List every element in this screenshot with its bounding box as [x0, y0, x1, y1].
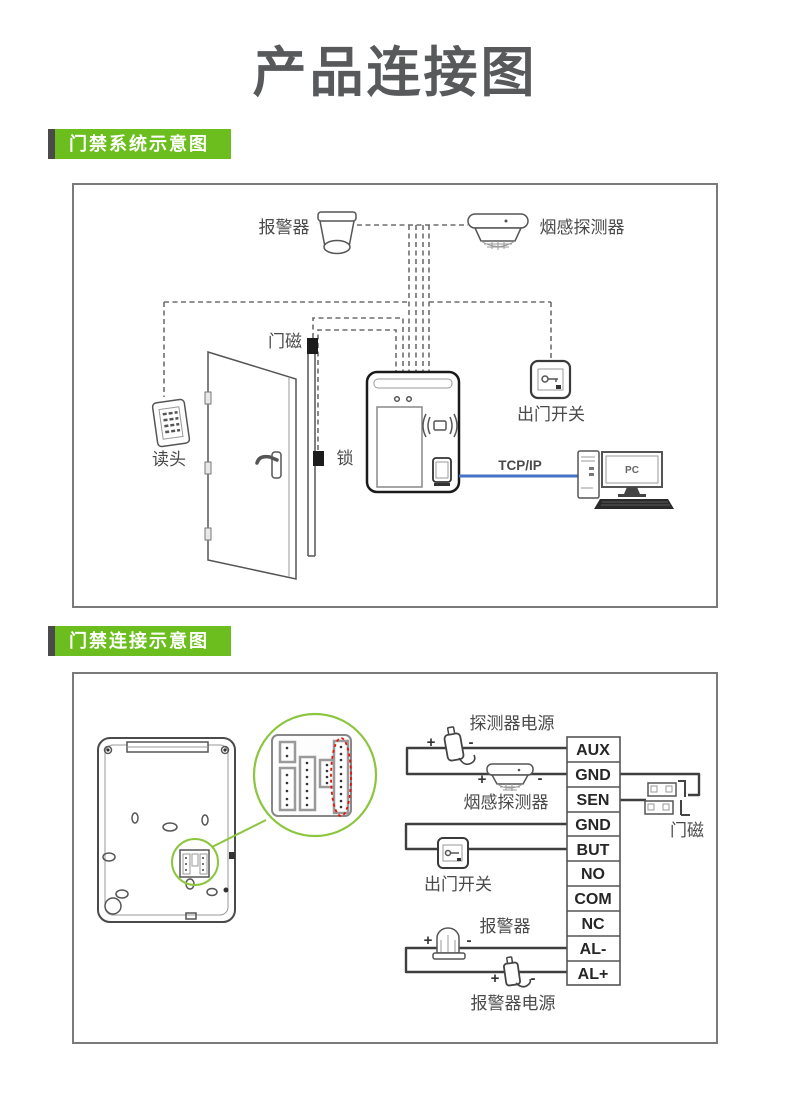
pc-label: PC: [625, 465, 639, 476]
exit-switch-icon: [438, 838, 468, 868]
minus-sign: -: [469, 734, 474, 751]
page-title: 产品连接图: [0, 28, 790, 107]
section-header-system: 门禁系统示意图: [48, 129, 231, 159]
card-reader-icon: [152, 399, 190, 447]
access-terminal-icon: [367, 372, 459, 492]
terminal-gnd2: GND: [575, 817, 611, 834]
section-header-wiring: 门禁连接示意图: [48, 626, 231, 656]
minus-sign: -: [531, 970, 536, 987]
section-label: 门禁系统示意图: [55, 129, 231, 159]
smoke-label: 烟感探测器: [464, 793, 549, 812]
minus-sign: -: [467, 932, 472, 949]
door-magnet-label: 门磁: [670, 821, 704, 840]
tcpip-label: TCP/IP: [498, 458, 542, 473]
section-notch: [48, 129, 55, 159]
exit-switch-icon: [531, 361, 570, 398]
plus-sign: +: [478, 771, 487, 788]
terminal-sen: SEN: [577, 792, 610, 809]
door-magnet-icon: [307, 338, 318, 354]
alarm-power-label: 报警器电源: [471, 994, 556, 1013]
section-notch: [48, 626, 55, 656]
detector-power-label: 探测器电源: [470, 714, 555, 733]
access-system-diagram: 报警器 烟感探测器 门磁 锁: [72, 183, 718, 608]
terminal-but: BUT: [577, 842, 610, 859]
plus-sign: +: [427, 734, 436, 751]
reader-label: 读头: [152, 450, 186, 469]
minus-sign: -: [538, 770, 543, 787]
alarm-label: 报警器: [259, 218, 310, 237]
page: 产品连接图 门禁系统示意图 报警器: [0, 0, 790, 1095]
alarm-label: 报警器: [480, 917, 531, 936]
section-label: 门禁连接示意图: [55, 626, 231, 656]
terminal-al-minus: AL-: [580, 941, 607, 958]
door-magnet-label: 门磁: [268, 332, 302, 351]
exit-switch-label: 出门开关: [424, 875, 492, 894]
exit-switch-label: 出门开关: [517, 405, 585, 424]
terminal-no: NO: [581, 866, 605, 883]
device-back-panel: [98, 738, 235, 922]
access-wiring-diagram: + - 探测器电源 + - 烟感探测器 出门开关 + - 报警器: [72, 672, 718, 1044]
lock-icon: [313, 451, 324, 466]
terminal-nc: NC: [581, 916, 605, 933]
plus-sign: +: [491, 970, 500, 987]
terminal-al-plus: AL+: [578, 966, 609, 983]
smoke-label: 烟感探测器: [540, 218, 625, 237]
fingerprint-module-icon: [433, 458, 451, 486]
terminal-com: COM: [574, 891, 611, 908]
terminal-strip: AUX GND SEN GND BUT NO COM NC AL- AL+: [567, 737, 620, 985]
terminal-gnd1: GND: [575, 767, 611, 784]
terminal-aux: AUX: [576, 742, 610, 759]
connector-detail: [272, 735, 351, 816]
lock-label: 锁: [337, 449, 354, 468]
plus-sign: +: [424, 932, 433, 949]
